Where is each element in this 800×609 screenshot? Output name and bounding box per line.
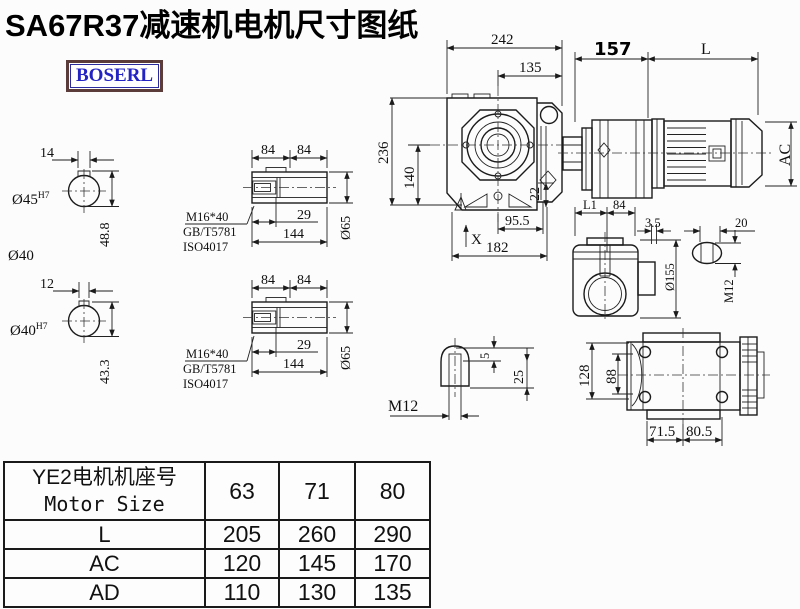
dim-22: 22 — [528, 187, 543, 201]
dim-20: 20 — [735, 216, 748, 230]
dim-hollow-a-84r: 84 — [297, 143, 311, 158]
shaft-section-b-view: 12 43.3 Ø40H7 — [10, 277, 119, 384]
drawing-sheet: 14 48.8 Ø45H7 Ø40 12 43.3 Ø40H7 84 84 29… — [0, 0, 800, 609]
table-row-L: L 205 260 290 — [4, 520, 430, 549]
dim-236: 236 — [376, 141, 392, 164]
dim-5: 5 — [478, 353, 492, 359]
hollow-b-bolt-label: M16*40 — [186, 347, 228, 361]
dim-hollow-a-144: 144 — [283, 227, 304, 242]
shaft-a-outer-label: Ø40 — [8, 248, 34, 264]
row-label: AC — [4, 549, 205, 578]
dim-X: X — [471, 232, 482, 248]
dim-242: 242 — [491, 32, 514, 48]
table-cell: 110 — [205, 578, 279, 607]
hollow-shaft-b-view: 84 84 29 144 Ø65 M16*40 GB/T5781 ISO4017 — [183, 273, 354, 391]
dim-88: 88 — [604, 369, 620, 384]
dim-155: Ø155 — [663, 263, 677, 291]
brand-logo: BOSERL — [66, 60, 163, 92]
shaft-section-a-view: 14 48.8 Ø45H7 Ø40 — [8, 146, 119, 264]
hollow-a-std2-label: ISO4017 — [183, 240, 228, 254]
dim-182: 182 — [486, 240, 509, 256]
gearbox-side-view: L1 84 3.5 Ø155 — [573, 198, 681, 322]
hollow-a-bolt-label: M16*40 — [186, 210, 228, 224]
dim-157: 157 — [594, 39, 632, 60]
motor-size-table: YE2电机机座号 Motor Size 63 71 80 L 205 260 2… — [3, 461, 431, 608]
table-header-row: YE2电机机座号 Motor Size 63 71 80 — [4, 462, 430, 520]
dim-L: L — [701, 41, 711, 58]
gearbox-front-view: 242 135 157 L 236 140 22 95.5 182 X — [376, 32, 758, 261]
dim-hollow-b-84l: 84 — [261, 273, 275, 288]
hollow-a-std1-label: GB/T5781 — [183, 225, 236, 239]
dim-shaft-a-height: 48.8 — [98, 223, 113, 248]
table-cell: 145 — [279, 549, 355, 578]
dim-95-5: 95.5 — [505, 214, 530, 229]
dim-3-5: 3.5 — [645, 216, 661, 230]
table-header-motor-size: YE2电机机座号 Motor Size — [4, 462, 205, 520]
table-cell: 170 — [355, 549, 430, 578]
table-cell: 130 — [279, 578, 355, 607]
size-col-63: 63 — [205, 462, 279, 520]
dim-AC: AC — [777, 144, 794, 166]
dim-shaft-a-keyway: 14 — [40, 146, 54, 161]
dim-hollow-b-29: 29 — [297, 338, 311, 353]
table-cell: 205 — [205, 520, 279, 549]
dim-shaft-b-keyway: 12 — [40, 277, 54, 292]
table-row-AD: AD 110 130 135 — [4, 578, 430, 607]
gearbox-bottom-view: 128 88 71.5 80.5 — [577, 328, 770, 446]
dim-135: 135 — [519, 60, 542, 76]
header-cn: YE2电机机座号 — [5, 465, 204, 491]
hollow-b-std2-label: ISO4017 — [183, 377, 228, 391]
table-cell: 260 — [279, 520, 355, 549]
table-cell: 135 — [355, 578, 430, 607]
dim-71-5: 71.5 — [649, 424, 675, 440]
row-label: L — [4, 520, 205, 549]
table-cell: 120 — [205, 549, 279, 578]
dim-hollow-a-29: 29 — [297, 208, 311, 223]
table-row-AC: AC 120 145 170 — [4, 549, 430, 578]
shaft-b-bore-label: Ø40H7 — [10, 322, 48, 339]
dim-hollow-b-144: 144 — [283, 357, 304, 372]
keyseat-m12-label: M12 — [388, 398, 418, 415]
dim-hollow-b-84r: 84 — [297, 273, 311, 288]
flange-slot-detail: 20 M12 — [684, 216, 755, 303]
hollow-b-std1-label: GB/T5781 — [183, 362, 236, 376]
dim-shaft-b-height: 43.3 — [98, 360, 113, 385]
table-cell: 290 — [355, 520, 430, 549]
dim-128: 128 — [577, 365, 593, 388]
dim-L1: L1 — [583, 198, 597, 212]
header-en: Motor Size — [5, 491, 204, 517]
brand-logo-text: BOSERL — [70, 64, 159, 88]
shaft-a-bore-label: Ø45H7 — [12, 191, 50, 208]
size-col-71: 71 — [279, 462, 355, 520]
keyseat-detail: M12 5 25 — [388, 336, 534, 420]
size-col-80: 80 — [355, 462, 430, 520]
dim-side-84: 84 — [613, 198, 626, 212]
row-label: AD — [4, 578, 205, 607]
dim-flange-m12: M12 — [722, 279, 736, 303]
dim-140: 140 — [402, 167, 418, 190]
dim-hollow-a-84l: 84 — [261, 143, 275, 158]
dim-80-5: 80.5 — [686, 424, 712, 440]
motor-size-table-wrap: YE2电机机座号 Motor Size 63 71 80 L 205 260 2… — [3, 461, 431, 608]
dim-25: 25 — [512, 370, 527, 384]
page-title: SA67R37减速机电机尺寸图纸 — [5, 0, 418, 45]
dim-hollow-b-dia: Ø65 — [339, 346, 354, 370]
motor-side-view: AC — [558, 119, 797, 198]
hollow-shaft-a-view: 84 84 29 144 Ø65 M16*40 GB/T5781 ISO4017 — [183, 143, 354, 254]
dim-hollow-a-dia: Ø65 — [339, 216, 354, 240]
